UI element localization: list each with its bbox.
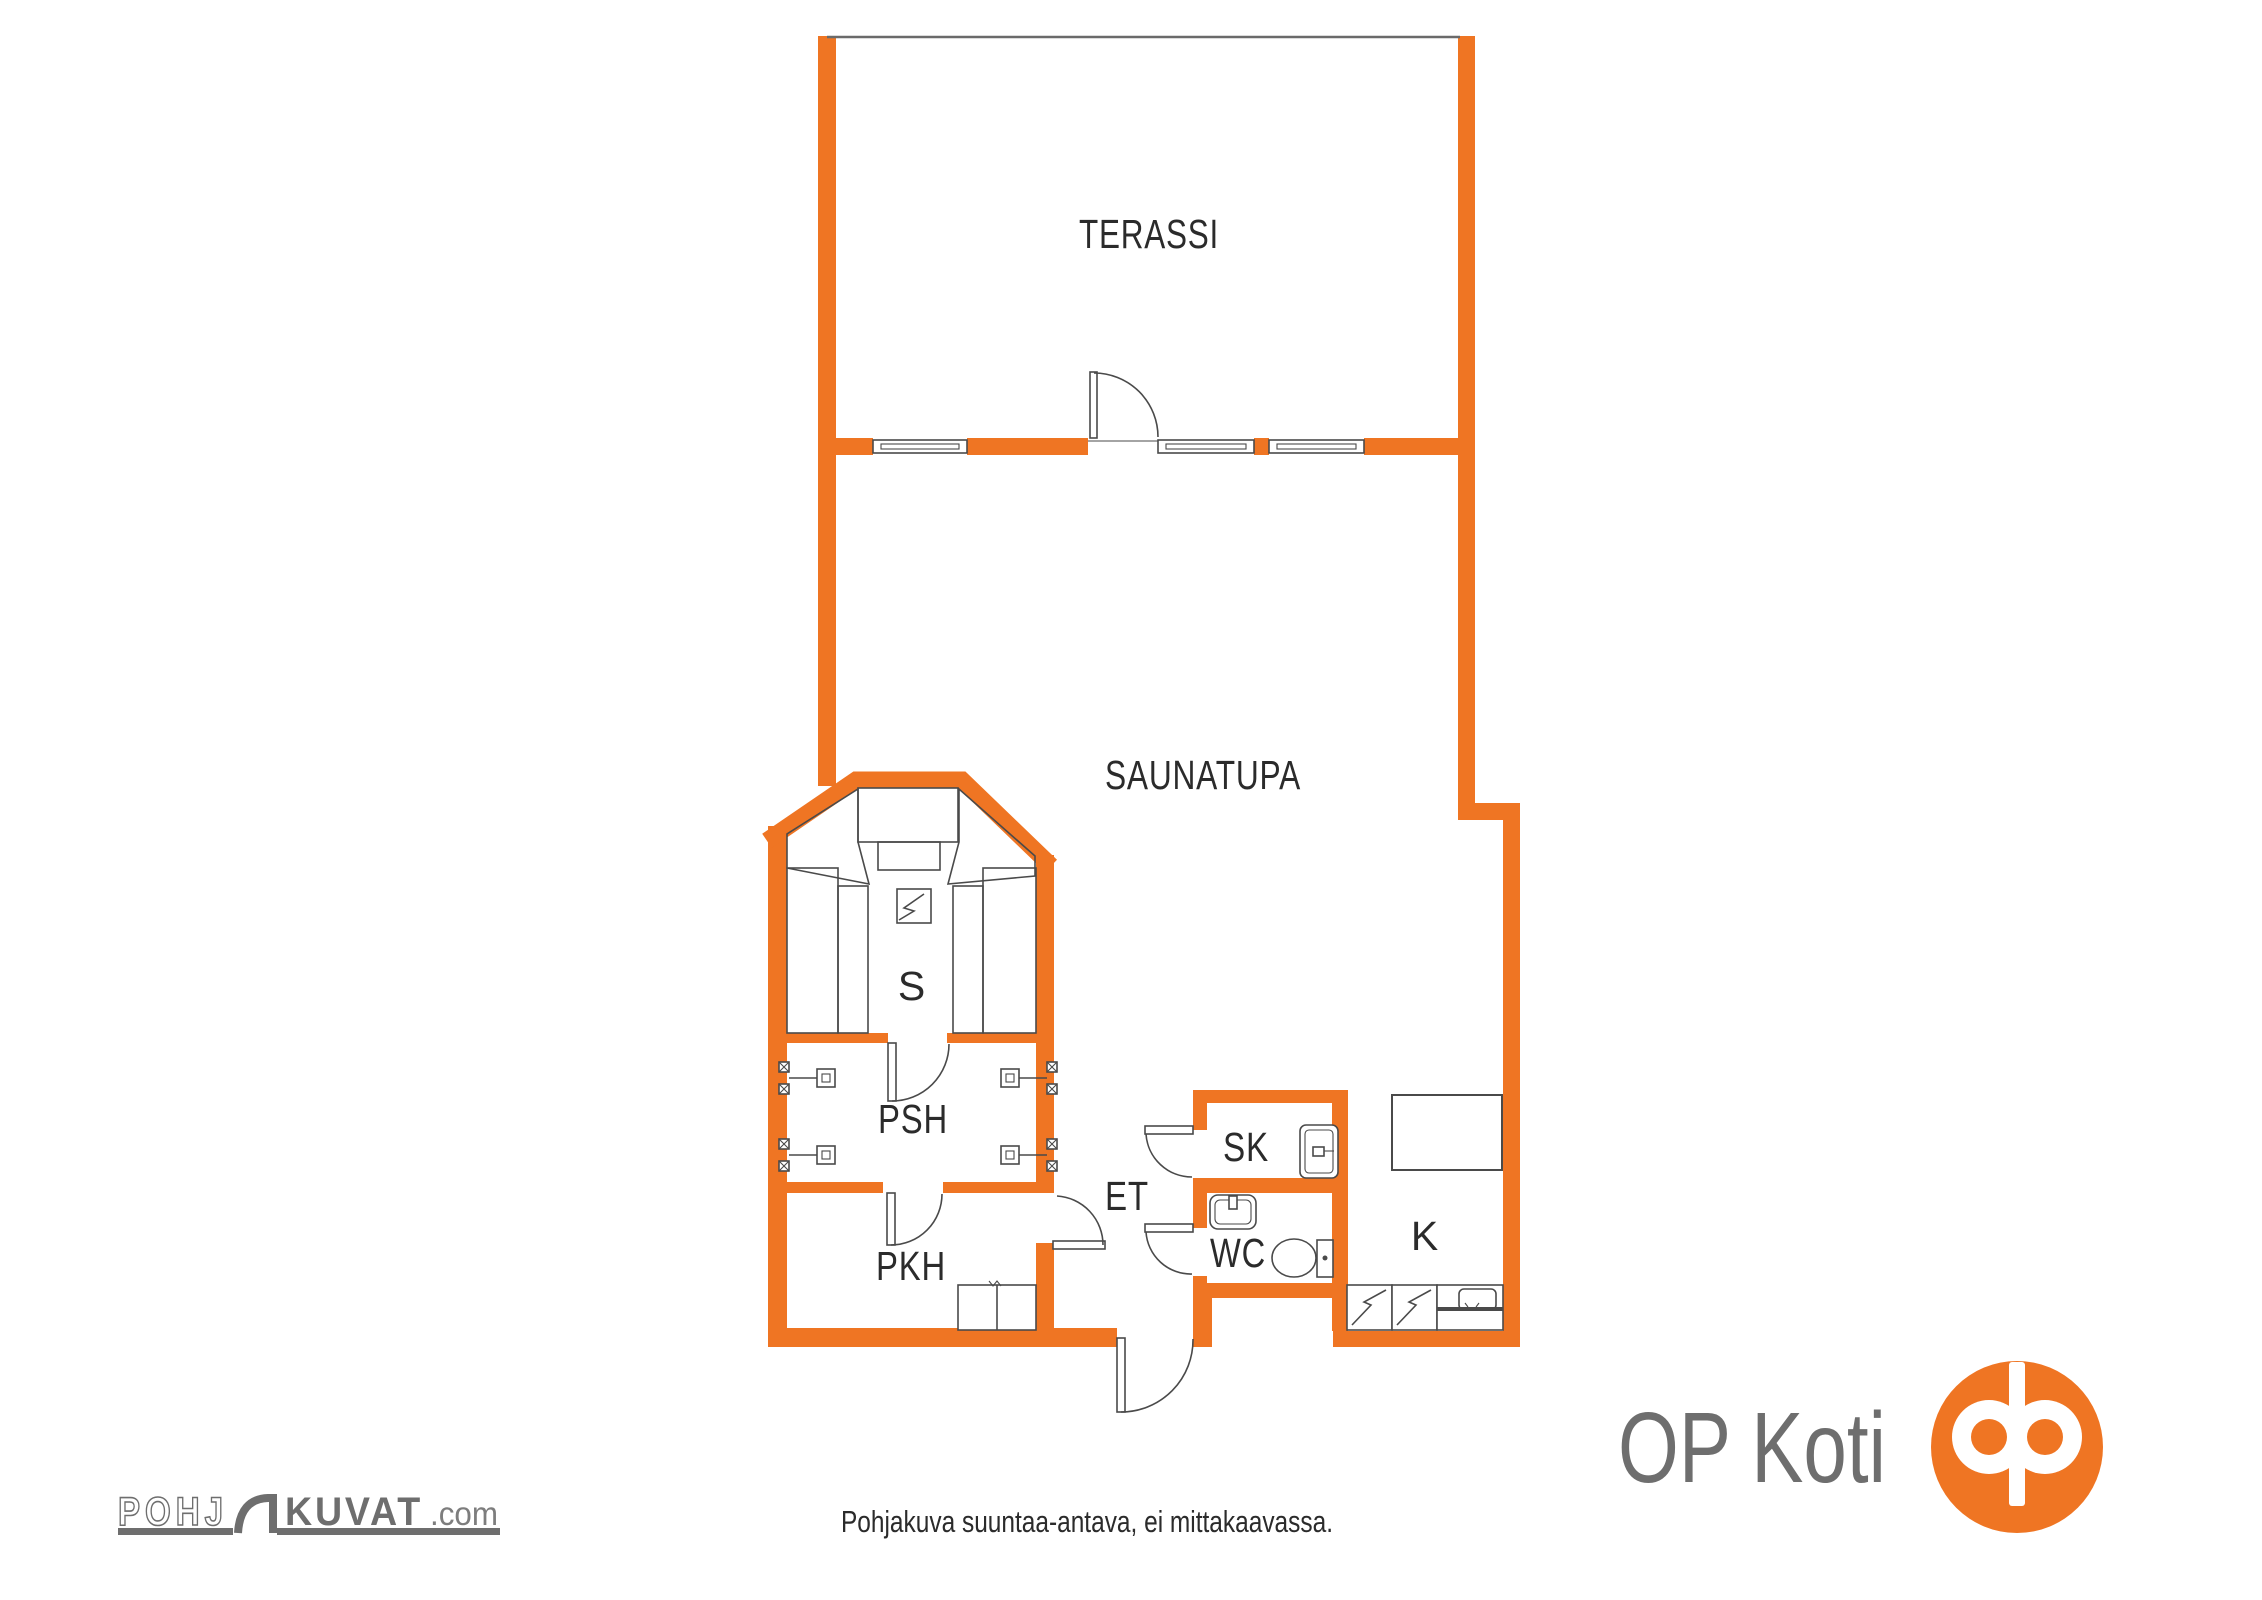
pohjakuvat-logo-com: .com xyxy=(430,1495,498,1532)
room-label-k: K xyxy=(1411,1213,1439,1259)
window xyxy=(1158,440,1254,453)
sauna-stove-icon xyxy=(897,889,931,923)
window xyxy=(873,440,967,453)
wc-basin-icon xyxy=(1210,1195,1256,1229)
room-label-sauna: S xyxy=(898,963,926,1009)
kitchen-stove-icon xyxy=(1392,1285,1437,1330)
room-wc: WC xyxy=(1145,1195,1333,1277)
room-label-saunatupa: SAUNATUPA xyxy=(1105,752,1301,798)
pkh-bench xyxy=(958,1281,1036,1330)
room-sk: SK xyxy=(1145,1124,1338,1178)
room-k: K xyxy=(1347,1095,1503,1330)
room-sauna: S xyxy=(787,788,1036,1101)
sk-sink-icon xyxy=(1300,1125,1338,1178)
wall-sk-top xyxy=(1193,1090,1348,1103)
op-koti-logo: OP Koti xyxy=(1618,1361,2103,1533)
entrance-door xyxy=(1117,1338,1193,1412)
wall-left xyxy=(818,36,836,786)
room-label-wc: WC xyxy=(1210,1230,1266,1276)
wc-door xyxy=(1145,1224,1193,1274)
kitchen-sink-icon xyxy=(1437,1285,1503,1330)
room-label-terassi: TERASSI xyxy=(1079,211,1219,257)
sauna-door xyxy=(888,1043,949,1101)
room-label-sk: SK xyxy=(1223,1124,1269,1170)
room-pkh: PKH xyxy=(876,1193,1036,1330)
wall-wc-bottom xyxy=(1193,1283,1348,1298)
floor-plan-drawing: TERASSI SAUNATUPA S xyxy=(0,0,2262,1600)
op-koti-logo-text: OP Koti xyxy=(1618,1392,1886,1504)
wall-sauna-top xyxy=(774,780,1045,860)
room-label-et: ET xyxy=(1105,1173,1149,1219)
kitchen-table xyxy=(1392,1095,1502,1170)
shower-fixture-icon xyxy=(779,1062,835,1094)
et-door xyxy=(1053,1196,1105,1249)
room-terassi: TERASSI xyxy=(827,37,1460,453)
bench-top-step xyxy=(878,842,940,870)
room-psh: PSH xyxy=(779,1062,1057,1171)
room-et: ET xyxy=(1053,1173,1193,1412)
kitchen-stove-icon xyxy=(1347,1285,1392,1330)
bench-top xyxy=(858,788,958,842)
bench-right-upper xyxy=(983,868,1036,1033)
pohjakuvat-logo-kuvat: KUVAT xyxy=(285,1490,423,1534)
bench-left-lower xyxy=(838,886,868,1033)
wall-right-lower xyxy=(1503,803,1520,1347)
toilet-icon xyxy=(1272,1239,1333,1277)
door-arc-icon xyxy=(238,1498,273,1533)
bench-left-upper xyxy=(787,868,838,1033)
pohjakuvat-logo-pohj: POHJ xyxy=(118,1490,228,1534)
floor-plan-page: TERASSI SAUNATUPA S xyxy=(0,0,2262,1600)
wall-right-upper xyxy=(1458,36,1475,820)
room-label-pkh: PKH xyxy=(876,1243,946,1289)
wall-sk-wc xyxy=(1193,1178,1332,1193)
wall-bottom-left xyxy=(768,1328,1117,1347)
shower-fixture-icon xyxy=(779,1139,835,1171)
room-label-psh: PSH xyxy=(878,1096,948,1142)
pohjakuvat-logo: POHJ KUVAT .com xyxy=(118,1490,500,1535)
sk-door xyxy=(1145,1126,1193,1177)
window xyxy=(1269,440,1364,453)
disclaimer-text: Pohjakuva suuntaa-antava, ei mittakaavas… xyxy=(841,1504,1333,1539)
pkh-door xyxy=(887,1193,942,1245)
bench-right-lower xyxy=(953,886,983,1033)
room-saunatupa: SAUNATUPA xyxy=(1105,752,1301,798)
terrace-door xyxy=(1088,372,1158,441)
op-logo-icon xyxy=(1931,1361,2103,1533)
wall-bottom-right xyxy=(1333,1331,1520,1347)
